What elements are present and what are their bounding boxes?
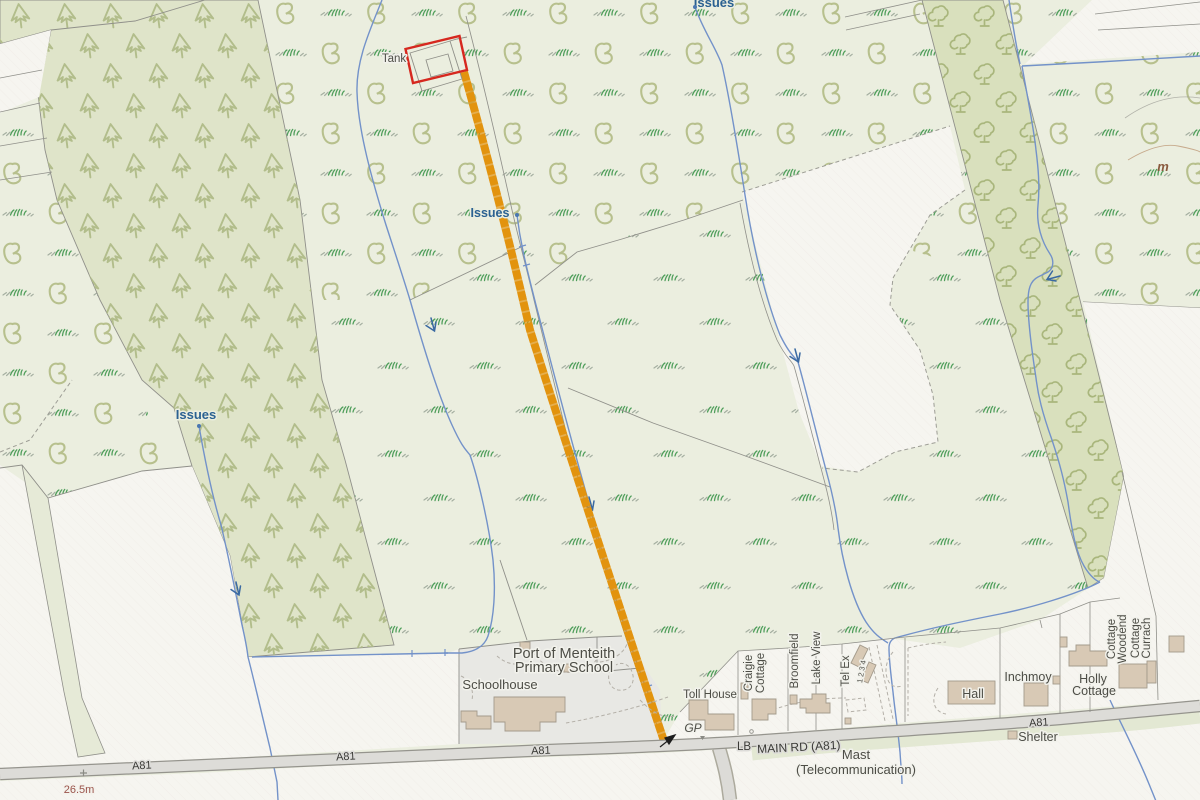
svg-text:Primary School: Primary School — [515, 660, 613, 676]
svg-text:Craigie: Craigie — [743, 655, 755, 691]
svg-text:Schoolhouse: Schoolhouse — [462, 677, 537, 692]
svg-text:Issues: Issues — [176, 407, 216, 422]
svg-text:Cottage: Cottage — [755, 653, 767, 693]
svg-text:Issues: Issues — [471, 206, 510, 220]
svg-text:A81: A81 — [531, 745, 551, 758]
svg-text:LB: LB — [737, 741, 751, 753]
svg-text:A81: A81 — [336, 751, 356, 764]
svg-text:A81: A81 — [132, 760, 152, 773]
svg-text:Hall: Hall — [962, 687, 984, 701]
svg-text:Broomfield: Broomfield — [789, 634, 801, 689]
svg-text:GP: GP — [684, 721, 701, 735]
svg-text:Currach: Currach — [1141, 618, 1153, 659]
svg-text:Tel Ex: Tel Ex — [840, 655, 852, 687]
svg-text:Tank: Tank — [382, 53, 407, 65]
svg-text:Shelter: Shelter — [1018, 730, 1058, 744]
svg-text:Woodend: Woodend — [1117, 614, 1129, 663]
svg-text:A81: A81 — [1029, 717, 1049, 730]
svg-text:Mast: Mast — [842, 747, 871, 762]
svg-text:26.5m: 26.5m — [64, 784, 95, 796]
svg-text:Lake View: Lake View — [811, 631, 823, 685]
svg-text:m: m — [1157, 159, 1169, 174]
svg-text:Issues: Issues — [694, 0, 734, 10]
svg-text:(Telecommunication): (Telecommunication) — [796, 762, 916, 777]
svg-text:Toll House: Toll House — [683, 689, 737, 701]
svg-text:Inchmoy: Inchmoy — [1004, 670, 1052, 684]
svg-text:Cottage: Cottage — [1072, 684, 1116, 698]
